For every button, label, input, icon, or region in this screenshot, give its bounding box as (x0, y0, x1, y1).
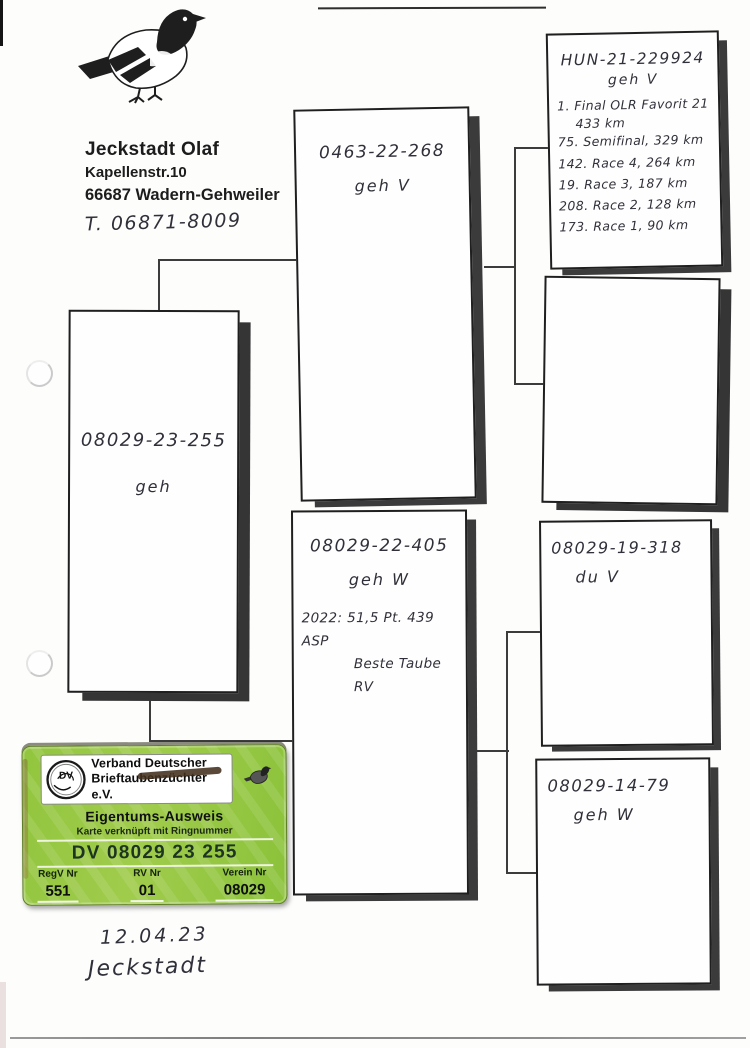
scan-page-edge-line (10, 1037, 746, 1039)
hole-punch-bottom (26, 650, 53, 677)
ring-number: 0463-22-268 (296, 140, 468, 163)
pedigree-box-mother: 08029-22-405 geh W 2022: 51,5 Pt. 439 AS… (291, 510, 469, 896)
sex-label: geh V (549, 70, 718, 89)
connector-paternal-branch (484, 266, 516, 268)
scan-corner-smudge (0, 982, 6, 1048)
pigeon-stamp-icon (244, 765, 274, 787)
result-line: 1. Final OLR Favorit 21 (557, 92, 714, 116)
sex-label: geh V (297, 174, 469, 196)
svg-text:DV: DV (59, 771, 73, 782)
connector-gfp-stub (514, 147, 552, 149)
pigeon-photo (78, 4, 216, 106)
connector-paternal-bracket (514, 147, 516, 385)
sticker-ring-number: DV 08029 23 255 (23, 841, 286, 865)
owner-city: 66687 Wadern-Gehweiler (85, 185, 280, 206)
pedigree-box-grandmother-paternal (541, 276, 720, 505)
result-line: 208. Race 2, 128 km (559, 192, 716, 216)
result-line: 19. Race 3, 187 km (558, 171, 715, 195)
connector-maternal-branch (477, 750, 509, 752)
pedigree-box-grandmother-maternal: 08029-14-79 geh W (535, 757, 712, 985)
connector-maternal-bracket (506, 631, 508, 874)
sex-label: geh W (293, 570, 465, 590)
connector-father-vertical (158, 259, 160, 312)
connector-mother-horizontal (149, 740, 295, 742)
sex-label: du V (541, 566, 710, 586)
ownership-sticker: DV Verband Deutscher Brieftaubenzüchter … (21, 744, 287, 906)
handwritten-date: 12.04.23 (100, 923, 209, 949)
sticker-title: Eigentums-Ausweis (23, 807, 286, 825)
ring-number: 08029-14-79 (537, 775, 708, 795)
connector-mother-vertical (149, 695, 151, 742)
ring-number: 08029-23-255 (70, 430, 237, 452)
owner-name: Jeckstadt Olaf (85, 138, 280, 162)
result-line: 2022: 51,5 Pt. 439 ASP (302, 607, 460, 654)
pedigree-box-grandfather-paternal: HUN-21-229924 geh V 1. Final OLR Favorit… (546, 30, 723, 269)
connector-gmp-stub (514, 383, 546, 385)
sex-label: geh (70, 477, 237, 497)
connector-gmm-stub (506, 872, 539, 874)
association-name: Verband Deutscher Brieftaubenzüchter e.V… (91, 756, 228, 803)
pedigree-box-father: 0463-22-268 geh V (293, 106, 476, 501)
dv-association-logo: DV (46, 758, 87, 800)
pedigree-box-grandfather-maternal: 08029-19-318 du V (539, 519, 714, 747)
ring-number: 08029-22-405 (293, 536, 465, 557)
sex-label: geh W (538, 804, 709, 824)
owner-address-block: Jeckstadt Olaf Kapellenstr.10 66687 Wade… (85, 138, 280, 235)
result-line: 173. Race 1, 90 km (559, 214, 716, 238)
field-rv: RV Nr 01 (131, 868, 164, 902)
connector-father-horizontal (158, 259, 302, 261)
scan-edge-mark (0, 0, 3, 46)
field-verein: Verein Nr 08029 (216, 867, 274, 901)
result-line: 75. Semifinal, 329 km (558, 129, 715, 153)
result-line: Beste Taube RV (354, 652, 460, 698)
sticker-fields: RegV Nr 551 RV Nr 01 Verein Nr 08029 (37, 867, 273, 903)
pedigree-box-subject: 08029-23-255 geh (67, 310, 239, 694)
result-line: 142. Race 4, 264 km (558, 150, 715, 174)
association-banner: DV Verband Deutscher Brieftaubenzüchter … (41, 753, 233, 804)
field-regv: RegV Nr 551 (37, 869, 78, 903)
connector-gfm-stub (506, 631, 543, 633)
pedigree-document-page: Jeckstadt Olaf Kapellenstr.10 66687 Wade… (0, 0, 750, 1048)
sticker-subtitle: Karte verknüpft mit Ringnummer (23, 825, 286, 838)
ring-number: HUN-21-229924 (548, 48, 717, 69)
owner-phone: T. 06871-8009 (85, 209, 280, 238)
hole-punch-top (26, 360, 53, 387)
ring-number: 08029-19-318 (541, 537, 710, 557)
owner-street: Kapellenstr.10 (85, 164, 280, 183)
handwritten-signature: Jeckstadt (88, 953, 208, 982)
scan-top-line (318, 7, 546, 10)
